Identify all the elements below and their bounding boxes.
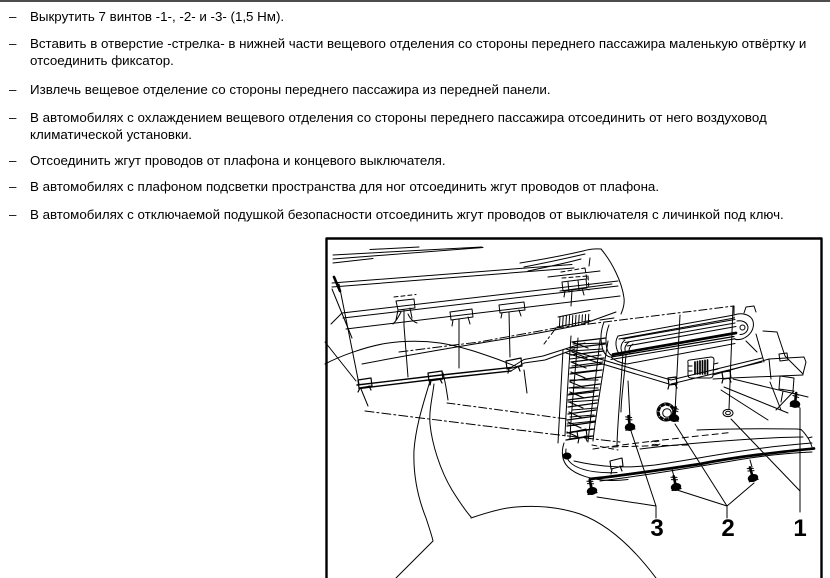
svg-text:1: 1 [793,515,806,542]
svg-text:2: 2 [721,515,734,542]
svg-text:3: 3 [650,515,663,542]
